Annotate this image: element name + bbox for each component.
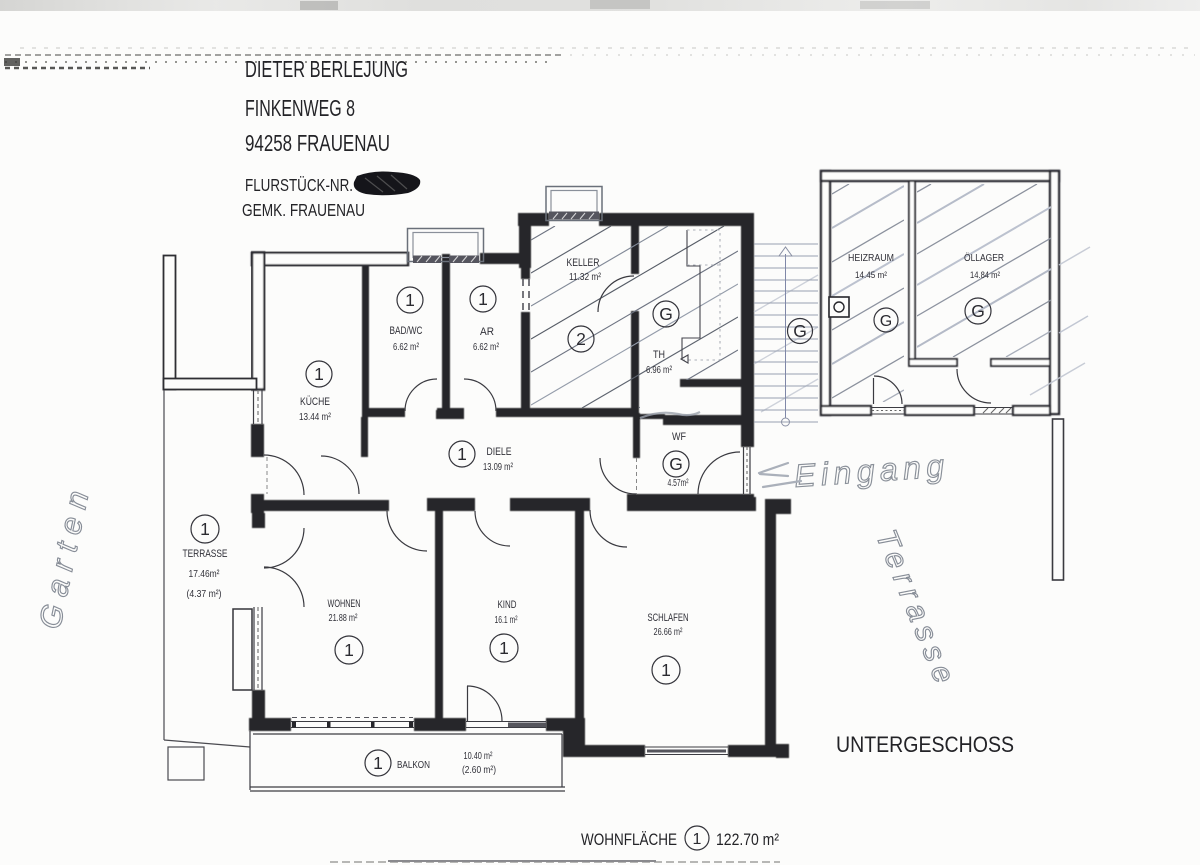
svg-text:GEMK. FRAUENAU: GEMK. FRAUENAU — [242, 200, 365, 220]
svg-text:ÖLLAGER: ÖLLAGER — [964, 252, 1004, 264]
svg-text:1: 1 — [373, 753, 383, 773]
svg-text:21.88 m²: 21.88 m² — [329, 613, 358, 624]
svg-text:13.44 m²: 13.44 m² — [299, 412, 332, 423]
svg-text:13.09 m²: 13.09 m² — [483, 462, 514, 473]
svg-text:1: 1 — [200, 519, 210, 539]
svg-text:6.62 m²: 6.62 m² — [473, 342, 500, 353]
svg-text:DIETER BERLEJUNG: DIETER BERLEJUNG — [245, 56, 408, 82]
svg-text:26.66 m²: 26.66 m² — [654, 627, 683, 638]
svg-text:UNTERGESCHOSS: UNTERGESCHOSS — [836, 732, 1014, 757]
svg-text:(4.37 m²): (4.37 m²) — [187, 589, 222, 600]
svg-text:FLURSTÜCK-NR.: FLURSTÜCK-NR. — [245, 175, 353, 195]
svg-text:BAD/WC: BAD/WC — [390, 325, 423, 337]
svg-text:1: 1 — [693, 831, 702, 848]
svg-text:1: 1 — [499, 638, 509, 658]
svg-text:11.32 m²: 11.32 m² — [569, 272, 602, 283]
svg-text:1: 1 — [478, 289, 488, 309]
svg-text:16.1 m²: 16.1 m² — [495, 615, 518, 626]
svg-text:G: G — [793, 321, 807, 341]
svg-text:1: 1 — [405, 290, 415, 310]
svg-text:BALKON: BALKON — [397, 760, 430, 771]
svg-text:AR: AR — [480, 326, 494, 338]
svg-text:(2.60 m²): (2.60 m²) — [462, 765, 496, 776]
svg-text:TH: TH — [653, 349, 665, 361]
svg-text:HEIZRAUM: HEIZRAUM — [848, 253, 894, 264]
svg-text:4.57m²: 4.57m² — [668, 478, 689, 489]
svg-text:1: 1 — [661, 660, 671, 680]
svg-text:6.62 m²: 6.62 m² — [393, 342, 420, 353]
svg-text:WOHNFLÄCHE: WOHNFLÄCHE — [581, 830, 677, 849]
svg-text:KIND: KIND — [498, 599, 517, 611]
svg-text:G: G — [880, 313, 892, 330]
svg-text:1: 1 — [457, 444, 467, 464]
svg-text:G: G — [659, 304, 673, 324]
svg-text:G: G — [971, 301, 985, 321]
svg-text:14.45 m²: 14.45 m² — [855, 270, 887, 281]
svg-text:FINKENWEG 8: FINKENWEG 8 — [245, 95, 355, 121]
svg-text:17.46m²: 17.46m² — [189, 569, 221, 580]
svg-text:1: 1 — [314, 364, 324, 384]
svg-text:6.96 m²: 6.96 m² — [646, 365, 673, 376]
svg-text:DIELE: DIELE — [487, 446, 512, 458]
svg-text:1: 1 — [344, 640, 354, 660]
svg-text:14.84 m²: 14.84 m² — [970, 270, 1000, 281]
svg-text:2: 2 — [576, 329, 586, 349]
svg-text:94258 FRAUENAU: 94258 FRAUENAU — [245, 130, 390, 156]
svg-text:TERRASSE: TERRASSE — [183, 548, 228, 560]
svg-text:SCHLAFEN: SCHLAFEN — [648, 612, 689, 624]
svg-text:KÜCHE: KÜCHE — [300, 396, 330, 408]
svg-text:WOHNEN: WOHNEN — [328, 598, 361, 610]
svg-text:WF: WF — [672, 431, 686, 443]
svg-text:10.40 m²: 10.40 m² — [464, 751, 493, 762]
svg-text:KELLER: KELLER — [567, 257, 600, 269]
svg-text:122.70 m²: 122.70 m² — [716, 830, 779, 849]
svg-text:G: G — [669, 454, 683, 474]
